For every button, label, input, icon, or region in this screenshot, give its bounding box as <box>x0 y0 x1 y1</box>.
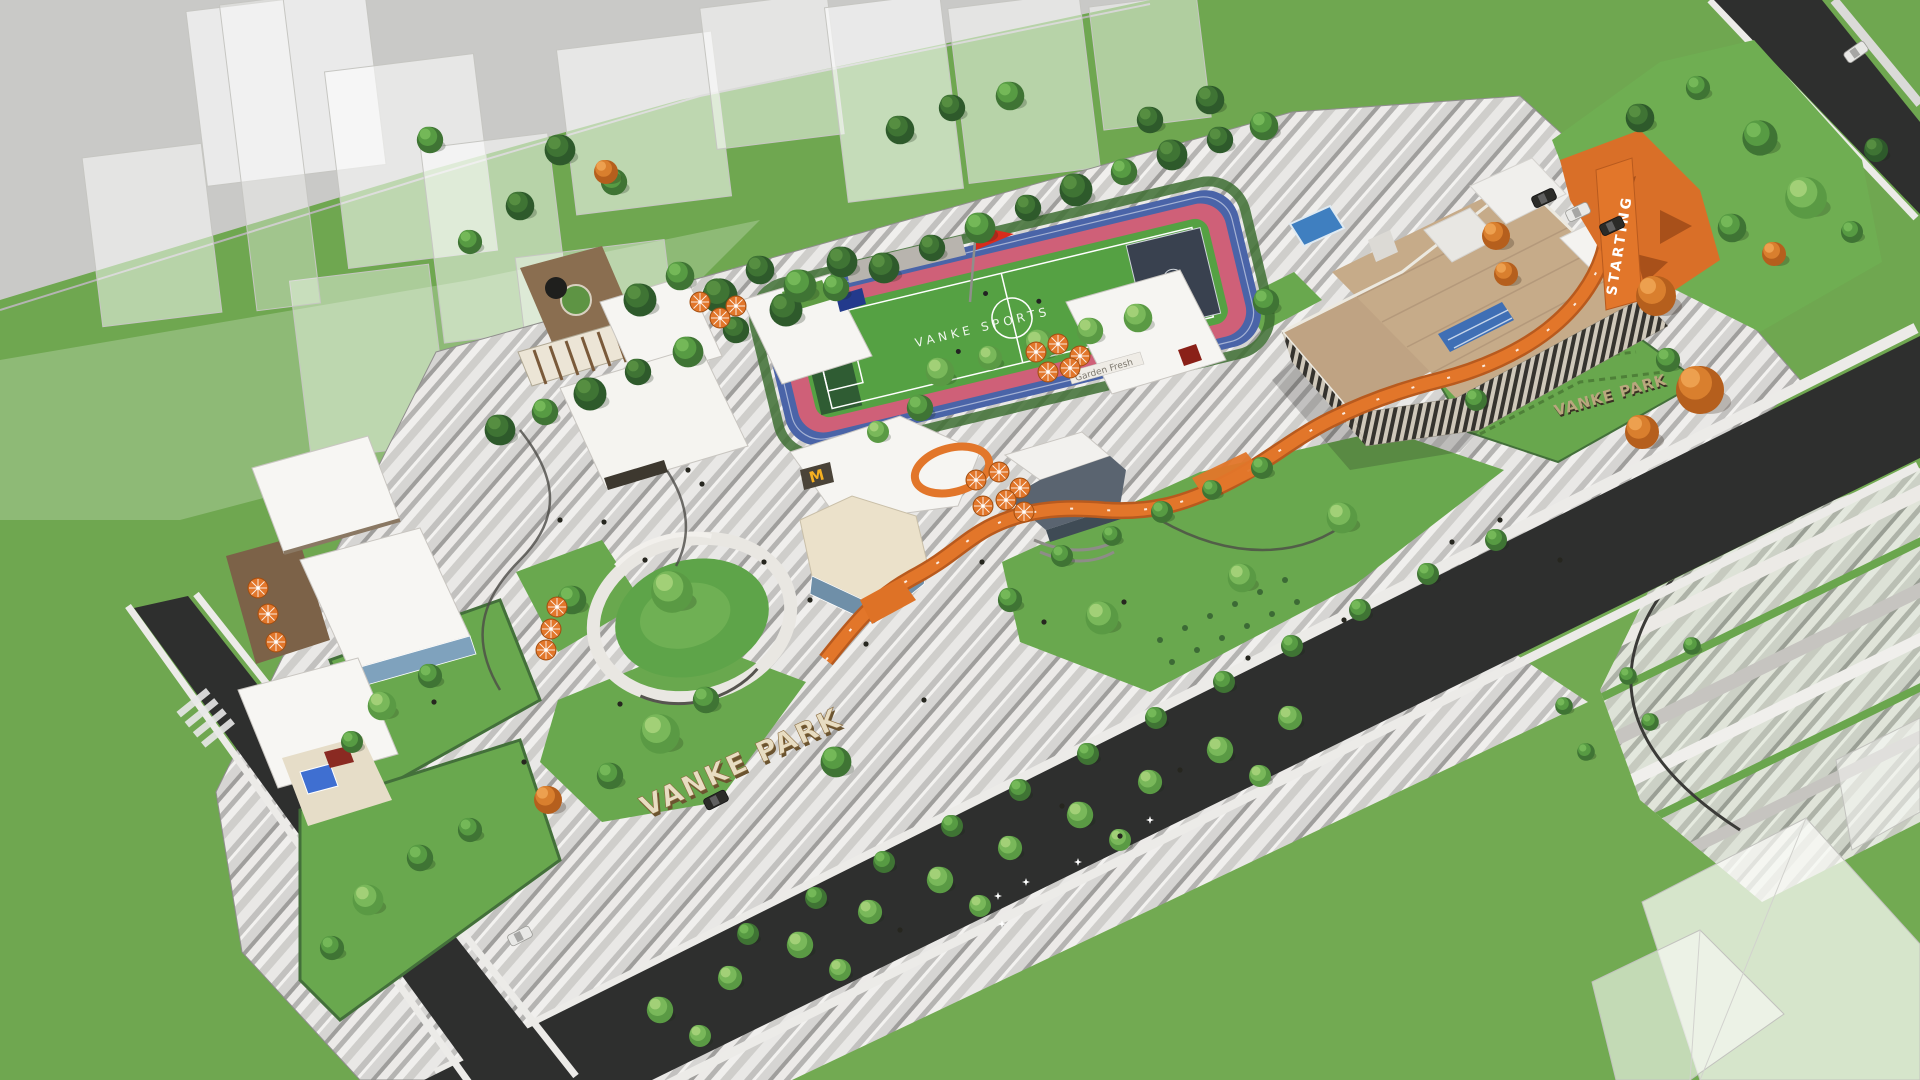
person-icon <box>897 927 902 932</box>
person-icon <box>617 701 622 706</box>
person-icon <box>1121 599 1126 604</box>
shade-canopy <box>545 277 567 299</box>
parasol-icon <box>541 619 561 639</box>
person-icon <box>685 467 690 472</box>
parasol-icon <box>1026 342 1046 362</box>
parasol-icon <box>973 496 993 516</box>
person-icon <box>699 481 704 486</box>
person-icon <box>1117 833 1122 838</box>
parasol-icon <box>258 604 278 624</box>
parasol-icon <box>1038 362 1058 382</box>
person-icon <box>601 519 606 524</box>
person-icon <box>1245 655 1250 660</box>
person-icon <box>1557 557 1562 562</box>
person-icon <box>1449 539 1454 544</box>
parasol-icon <box>266 632 286 652</box>
parasol-icon <box>1048 334 1068 354</box>
parasol-icon <box>248 578 268 598</box>
person-icon <box>761 559 766 564</box>
parasol-icon <box>966 470 986 490</box>
person-icon <box>1041 619 1046 624</box>
parasol-icon <box>996 490 1016 510</box>
parasol-icon <box>726 296 746 316</box>
parasol-icon <box>1060 358 1080 378</box>
parasol-icon <box>690 292 710 312</box>
person-icon <box>863 641 868 646</box>
person-icon <box>642 557 647 562</box>
parasol-icon <box>547 597 567 617</box>
parasol-icon <box>989 462 1009 482</box>
person-icon <box>1059 803 1064 808</box>
person-icon <box>1341 617 1346 622</box>
person-icon <box>521 759 526 764</box>
parasol-icon <box>536 640 556 660</box>
person-icon <box>1497 517 1502 522</box>
person-icon <box>1177 767 1182 772</box>
masterplan-render: VANKE SPORTS M Gard <box>0 0 1920 1080</box>
person-icon <box>557 517 562 522</box>
person-icon <box>979 559 984 564</box>
person-icon <box>807 597 812 602</box>
person-icon <box>431 699 436 704</box>
person-icon <box>921 697 926 702</box>
parasol-icon <box>1014 502 1034 522</box>
